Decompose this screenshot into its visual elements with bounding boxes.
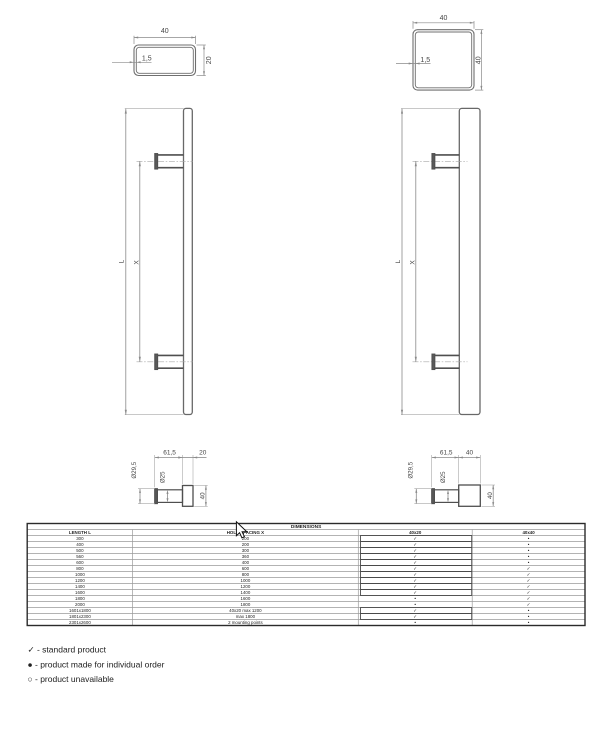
svg-text:360: 360 (242, 554, 250, 559)
svg-text:1000: 1000 (75, 572, 85, 577)
svg-text:✓: ✓ (413, 566, 417, 571)
svg-text:✓: ✓ (527, 572, 531, 577)
svg-text:Ø25: Ø25 (440, 471, 447, 483)
svg-text:61,5: 61,5 (440, 450, 453, 457)
svg-text:1601x1800: 1601x1800 (69, 608, 91, 613)
svg-text:40: 40 (161, 28, 169, 35)
svg-text:300: 300 (242, 548, 250, 553)
svg-text:L: L (119, 259, 126, 263)
svg-text:✓: ✓ (413, 554, 417, 559)
svg-text:✓ - standard product: ✓ - standard product (28, 645, 107, 655)
svg-text:500: 500 (76, 548, 84, 553)
svg-text:40: 40 (466, 450, 474, 457)
svg-text:✓: ✓ (413, 560, 417, 565)
svg-text:X: X (133, 260, 140, 265)
svg-text:✓: ✓ (527, 584, 531, 589)
svg-text:✓: ✓ (413, 572, 417, 577)
svg-text:1,5: 1,5 (142, 56, 152, 63)
svg-text:800: 800 (76, 566, 84, 571)
svg-text:40x20: 40x20 (409, 530, 422, 535)
svg-text:✓: ✓ (413, 608, 417, 613)
svg-text:✓: ✓ (413, 578, 417, 583)
svg-text:X: X (409, 260, 416, 265)
svg-text:Ø29,5: Ø29,5 (131, 461, 138, 478)
svg-text:✓: ✓ (527, 578, 531, 583)
svg-text:2000: 2000 (75, 602, 85, 607)
svg-text:1,5: 1,5 (420, 57, 430, 64)
svg-text:1400: 1400 (241, 590, 251, 595)
svg-text:20: 20 (206, 56, 213, 64)
svg-text:L: L (395, 259, 402, 263)
svg-text:✓: ✓ (527, 566, 531, 571)
svg-text:600: 600 (242, 566, 250, 571)
svg-text:✓: ✓ (413, 536, 417, 541)
svg-text:✓: ✓ (527, 590, 531, 595)
svg-text:40: 40 (200, 492, 207, 499)
svg-text:✓: ✓ (413, 590, 417, 595)
svg-text:max 1800: max 1800 (236, 614, 256, 619)
svg-text:1200: 1200 (75, 578, 85, 583)
svg-text:40x20 max 1200: 40x20 max 1200 (229, 608, 262, 613)
svg-text:40: 40 (475, 56, 482, 64)
svg-text:200: 200 (242, 542, 250, 547)
svg-text:✓: ✓ (527, 596, 531, 601)
svg-text:400: 400 (76, 542, 84, 547)
svg-text:1801x2300: 1801x2300 (69, 614, 91, 619)
svg-text:600: 600 (76, 560, 84, 565)
svg-text:40: 40 (440, 15, 448, 22)
svg-text:1200: 1200 (241, 584, 251, 589)
svg-text:400: 400 (242, 560, 250, 565)
svg-text:20: 20 (199, 450, 207, 457)
svg-text:2 mounting points: 2 mounting points (228, 620, 263, 625)
svg-text:✓: ✓ (413, 548, 417, 553)
svg-text:2301x2600: 2301x2600 (69, 620, 91, 625)
svg-text:1800: 1800 (75, 596, 85, 601)
svg-text:✓: ✓ (413, 584, 417, 589)
svg-text:✓: ✓ (413, 614, 417, 619)
svg-text:1600: 1600 (241, 596, 251, 601)
svg-text:1600: 1600 (75, 590, 85, 595)
svg-text:DIMENSIONS: DIMENSIONS (291, 524, 322, 530)
svg-text:300: 300 (76, 536, 84, 541)
svg-text:1000: 1000 (241, 578, 251, 583)
svg-text:40: 40 (487, 492, 494, 499)
svg-text:Ø29,5: Ø29,5 (408, 461, 415, 478)
svg-text:560: 560 (76, 554, 84, 559)
svg-text:LENGTH L: LENGTH L (69, 530, 91, 535)
svg-text:○ - product unavailable: ○ - product unavailable (28, 674, 115, 684)
svg-text:1800: 1800 (241, 602, 251, 607)
svg-text:61,5: 61,5 (163, 450, 176, 457)
svg-text:✓: ✓ (527, 602, 531, 607)
svg-text:800: 800 (242, 572, 250, 577)
svg-text:● - product made for individua: ● - product made for individual order (28, 660, 165, 670)
svg-text:40x40: 40x40 (522, 530, 535, 535)
svg-text:1400: 1400 (75, 584, 85, 589)
svg-text:Ø25: Ø25 (160, 471, 167, 483)
svg-text:✓: ✓ (413, 542, 417, 547)
